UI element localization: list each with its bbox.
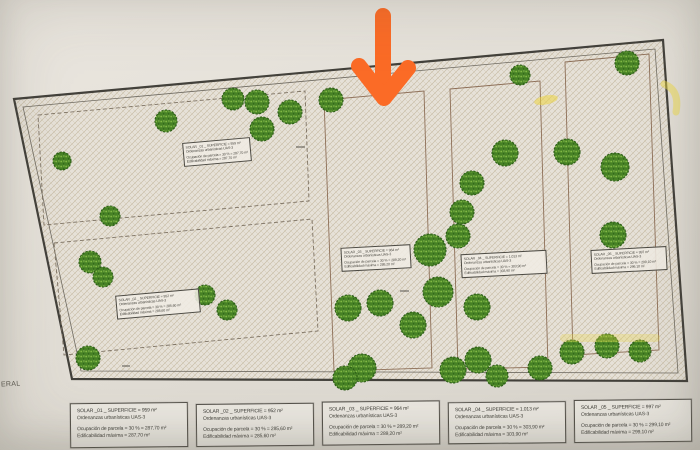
plan-label-solar-04: SOLAR _04 _ SUPERFICIE = 1.013 m²Ordenan… <box>460 250 547 278</box>
tree-icon <box>486 365 508 387</box>
tree-icon <box>217 300 237 320</box>
tree-icon <box>250 117 274 141</box>
orange-down-arrow-icon <box>359 16 408 98</box>
tree-icon <box>450 200 474 224</box>
tree-icon <box>222 88 244 110</box>
legend-edificabilidad: Edificabilidad máxima = 303,90 m² <box>455 431 560 439</box>
legend-strip: SOLAR _01 _ SUPERFICIE = 959 m²Ordenanza… <box>70 397 696 449</box>
site-plan-drawing <box>0 0 700 450</box>
tree-icon <box>367 290 393 316</box>
tree-icon <box>560 340 584 364</box>
legend-ordenanzas: Ordenanzas urbanísticas UAS-3 <box>203 415 308 423</box>
plan-label-solar-05: SOLAR _05 _ SUPERFICIE = 997 m²Ordenanza… <box>590 246 667 274</box>
legend-box-solar-04: SOLAR _04 _ SUPERFICIE = 1.013 m²Ordenan… <box>448 401 566 444</box>
tree-icon <box>528 356 552 380</box>
legend-box-solar-01: SOLAR _01 _ SUPERFICIE = 959 m²Ordenanza… <box>70 402 188 448</box>
margin-text: ERAL <box>1 380 21 388</box>
legend-ordenanzas: Ordenanzas urbanísticas UAS-3 <box>455 413 560 421</box>
tree-icon <box>245 90 269 114</box>
tree-icon <box>492 140 518 166</box>
legend-box-solar-02: SOLAR _02 _ SUPERFICIE = 952 m²Ordenanza… <box>196 403 314 447</box>
tree-icon <box>53 152 71 170</box>
legend-edificabilidad: Edificabilidad máxima = 299,10 m² <box>581 429 686 437</box>
tree-icon <box>615 51 639 75</box>
tree-icon <box>278 100 302 124</box>
tree-icon <box>446 224 470 248</box>
tree-icon <box>319 88 343 112</box>
tree-icon <box>423 277 453 307</box>
plan-label-solar-03: SOLAR _03 _ SUPERFICIE = 964 m²Ordenanza… <box>340 244 411 271</box>
tree-icon <box>465 347 491 373</box>
tree-icon <box>601 153 629 181</box>
legend-box-solar-05: SOLAR _05 _ SUPERFICIE = 997 m²Ordenanza… <box>574 399 692 443</box>
tree-icon <box>76 346 100 370</box>
tree-icon <box>460 171 484 195</box>
legend-box-solar-03: SOLAR _03 _ SUPERFICIE = 964 m²Ordenanza… <box>322 400 440 445</box>
legend-edificabilidad: Edificabilidad máxima = 287,70 m² <box>77 432 182 440</box>
tree-icon <box>333 366 357 390</box>
legend-ordenanzas: Ordenanzas urbanísticas UAS-3 <box>77 414 182 422</box>
tree-icon <box>93 267 113 287</box>
legend-edificabilidad: Edificabilidad máxima = 289,20 m² <box>329 430 434 438</box>
tree-icon <box>155 110 177 132</box>
tree-icon <box>464 294 490 320</box>
tree-icon <box>335 295 361 321</box>
tree-icon <box>440 357 466 383</box>
tree-icon <box>629 340 651 362</box>
tree-icon <box>600 222 626 248</box>
legend-ordenanzas: Ordenanzas urbanísticas UAS-3 <box>329 412 434 420</box>
tree-icon <box>510 65 530 85</box>
tree-icon <box>554 139 580 165</box>
legend-ordenanzas: Ordenanzas urbanísticas UAS-3 <box>581 411 686 419</box>
tree-icon <box>100 206 120 226</box>
tree-icon <box>414 234 446 266</box>
scanned-site-plan-page: SOLAR _01 _ SUPERFICIE = 959 m²Ordenanza… <box>0 0 700 450</box>
legend-edificabilidad: Edificabilidad máxima = 285,60 m² <box>203 433 308 441</box>
tree-icon <box>400 312 426 338</box>
